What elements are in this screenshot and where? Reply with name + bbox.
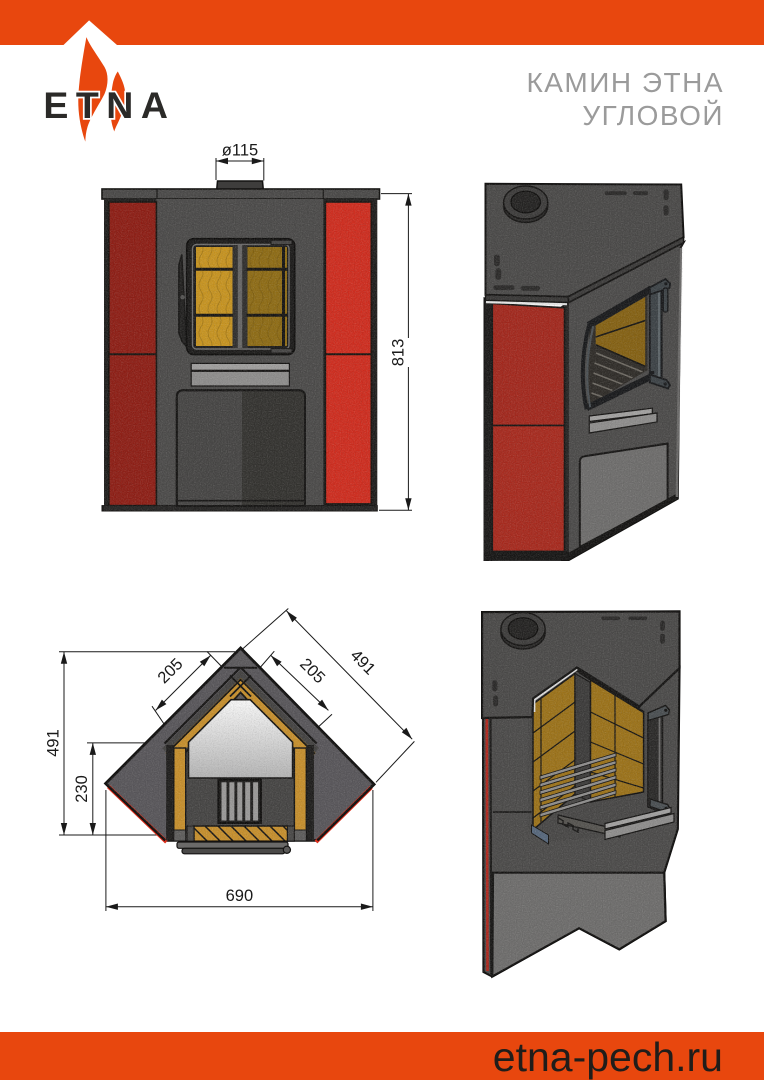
svg-text:690: 690	[226, 887, 254, 905]
svg-text:491: 491	[347, 646, 379, 678]
svg-text:205: 205	[296, 655, 328, 687]
svg-text:205: 205	[154, 655, 186, 687]
svg-text:230: 230	[73, 775, 91, 803]
svg-text:ETNA: ETNA	[43, 84, 175, 126]
svg-text:ø115: ø115	[222, 142, 258, 160]
svg-text:813: 813	[390, 339, 408, 367]
svg-text:491: 491	[45, 729, 63, 757]
